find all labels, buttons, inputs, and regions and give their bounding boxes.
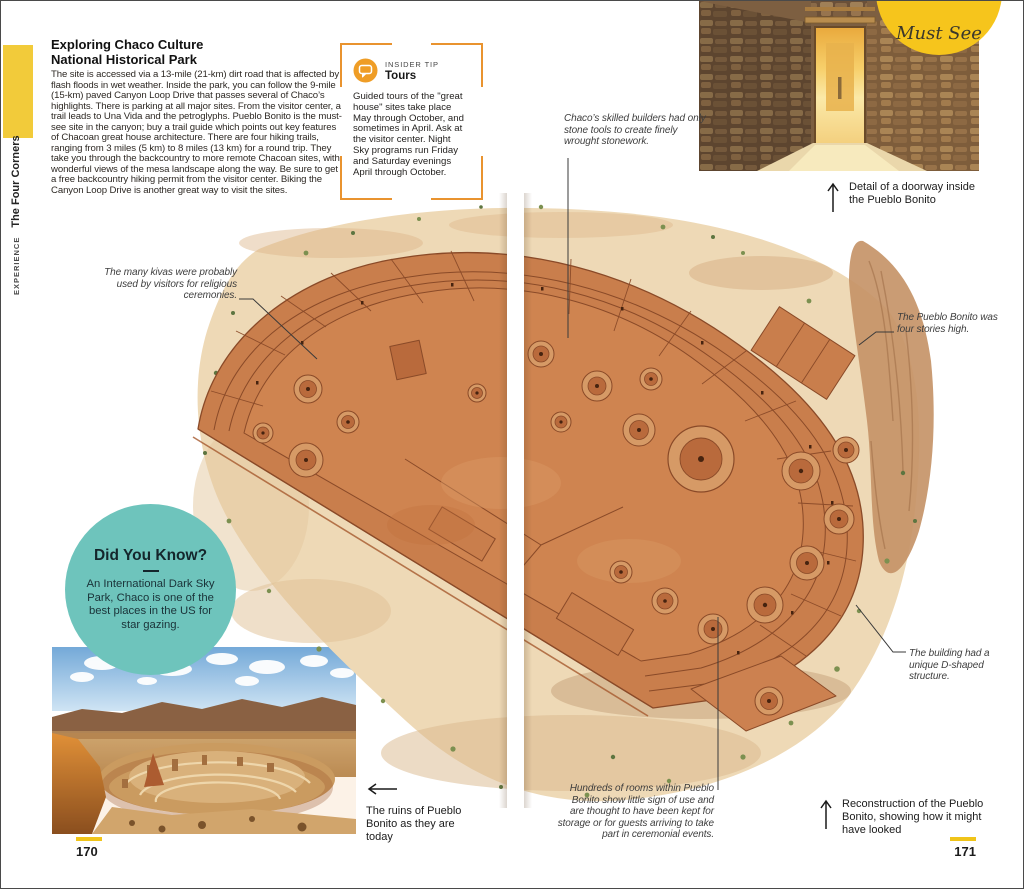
annotation-kivas: The many kivas were probably used by vis… [87,267,237,302]
tip-corner-bracket [431,43,483,87]
insider-tip-box: INSIDER TIP Tours Guided tours of the "g… [340,43,483,200]
did-you-know-title: Did You Know? [94,547,207,565]
sidebar-vertical-label: EXPERIENCE The Four Corners [10,135,22,295]
sidebar-chapter-label: The Four Corners [10,135,22,227]
up-arrow-icon [819,798,833,830]
reconstruction-caption: Reconstruction of the Pueblo Bonito, sho… [819,798,1002,837]
annotation-four-stories: The Pueblo Bonito was four stories high. [897,312,1001,335]
annotation-d-shape: The building had a unique D-shaped struc… [909,648,1007,683]
tip-corner-bracket [340,43,392,87]
sidebar-section-label: EXPERIENCE [12,237,21,295]
annotation-rooms: Hundreds of rooms within Pueblo Bonito s… [556,783,714,841]
doorway-caption: Detail of a doorway inside the Pueblo Bo… [826,181,987,213]
article-body: The site is accessed via a 13-mile (21-k… [51,70,342,196]
up-arrow-icon [826,181,840,213]
page-title: Exploring Chaco Culture National Histori… [51,37,203,68]
left-page-number: 170 [76,844,98,859]
right-page-dash [950,837,976,841]
did-you-know-divider [143,570,159,573]
did-you-know-circle: Did You Know? An International Dark Sky … [65,504,236,675]
page-gutter [499,193,532,808]
annotation-stonework: Chaco’s skilled builders had only stone … [564,113,714,148]
left-arrow-icon [366,782,398,796]
guidebook-spread: EXPERIENCE The Four Corners Exploring Ch… [0,0,1024,889]
pueblo-bonito-illustration [161,193,936,808]
did-you-know-body: An International Dark Sky Park, Chaco is… [81,578,221,632]
left-page-dash [76,837,102,841]
ruins-caption: The ruins of Pueblo Bonito as they are t… [366,782,466,844]
sidebar-yellow-tab [3,45,33,138]
right-page-number: 171 [916,844,976,859]
